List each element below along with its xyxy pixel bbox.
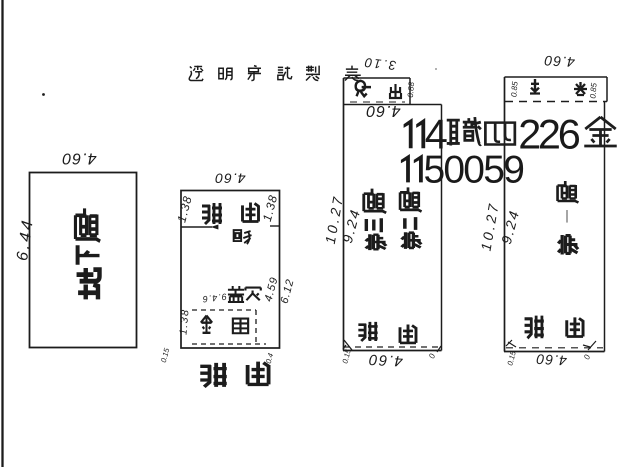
svg-text:4.60: 4.60: [365, 102, 400, 119]
svg-text:9: 9: [503, 148, 525, 191]
svg-text:6: 6: [558, 110, 581, 157]
svg-text:0.88: 0.88: [406, 81, 416, 98]
svg-text:4.60: 4.60: [61, 150, 96, 167]
svg-text:4.60: 4.60: [543, 53, 575, 71]
svg-text:5: 5: [424, 148, 446, 191]
svg-text:4.60: 4.60: [535, 351, 567, 369]
svg-text:5: 5: [483, 148, 505, 191]
svg-text:0.85: 0.85: [588, 82, 598, 99]
svg-text:4.60: 4.60: [367, 351, 403, 370]
svg-text:0.85: 0.85: [509, 81, 519, 98]
svg-text:1.38: 1.38: [177, 308, 191, 335]
svg-text:4.60: 4.60: [214, 171, 245, 187]
svg-text:0: 0: [443, 148, 465, 191]
svg-text:0: 0: [463, 148, 485, 191]
